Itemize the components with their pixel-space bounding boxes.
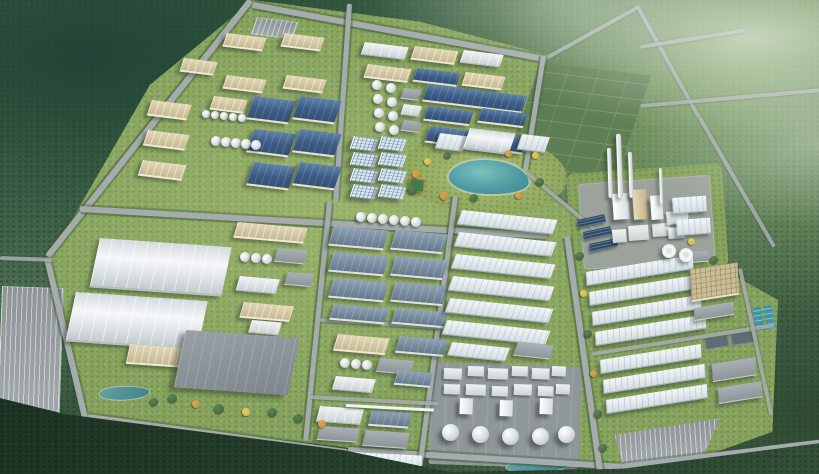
tank [220, 112, 228, 120]
warehouse-c [394, 370, 434, 388]
tank [240, 252, 250, 262]
dark-hall [174, 330, 300, 395]
tank [411, 217, 421, 227]
tree [408, 186, 417, 195]
aerial-render-industrial-park [0, 0, 819, 474]
tank [241, 139, 251, 149]
silo [502, 428, 519, 445]
tree [599, 444, 607, 452]
factory-c [284, 272, 314, 287]
silo [532, 428, 549, 445]
tree [584, 330, 592, 338]
tank [262, 254, 272, 264]
tree [150, 398, 158, 406]
tree [536, 178, 544, 186]
silo [442, 424, 459, 441]
factory-e [317, 426, 360, 443]
tank [340, 358, 350, 368]
plant-unit [514, 384, 532, 396]
tank [400, 216, 410, 226]
tree [580, 290, 587, 297]
tank [362, 360, 372, 370]
tank [202, 110, 210, 118]
tank [389, 125, 399, 135]
tank [378, 214, 388, 224]
plant-unit [488, 368, 508, 380]
logistics-warehouse [90, 238, 232, 297]
tank [238, 114, 246, 122]
plant-unit [532, 368, 550, 380]
factory-e [362, 430, 410, 449]
tree [168, 394, 177, 403]
tree [242, 408, 250, 416]
plant-hall [672, 196, 707, 214]
plant-unit [556, 384, 570, 394]
blue-hall [292, 162, 342, 190]
tank [251, 253, 261, 263]
plant-hall [676, 218, 711, 236]
lake-hall [517, 134, 550, 153]
tank [351, 359, 361, 369]
tree [590, 370, 597, 377]
tank [367, 213, 377, 223]
tree [515, 192, 522, 199]
tank [387, 97, 397, 107]
tree [688, 238, 695, 245]
tank [386, 83, 396, 93]
plant-tower [632, 189, 648, 220]
factory-b [400, 88, 422, 101]
tank [375, 122, 385, 132]
silo [472, 426, 489, 443]
blue-hall [246, 162, 296, 190]
tree [318, 420, 326, 428]
plant-unit [552, 366, 566, 376]
factory-c [248, 320, 282, 335]
tree [440, 192, 448, 200]
blue-hall [292, 129, 342, 157]
silo [558, 426, 575, 443]
tank [211, 111, 219, 119]
tree [412, 170, 420, 178]
tank [356, 212, 366, 222]
tank [251, 140, 261, 150]
plant-tower [499, 400, 513, 416]
tree [576, 252, 584, 260]
blue-hall [246, 96, 296, 124]
plant-tower [539, 398, 553, 414]
tree [444, 152, 451, 159]
plant-unit [628, 225, 649, 241]
tank [372, 80, 382, 90]
tree [268, 408, 277, 417]
tree [470, 194, 478, 202]
tree [214, 404, 224, 414]
cooling-tower [662, 244, 676, 258]
tree [532, 152, 539, 159]
plant-unit [444, 368, 462, 380]
plant-unit [512, 366, 528, 377]
blue-hall [292, 96, 342, 124]
plant-unit [612, 229, 627, 243]
plant-tower [459, 398, 473, 414]
tank [388, 111, 398, 121]
warehouse-e [368, 410, 412, 429]
tank [374, 108, 384, 118]
factory-c [274, 248, 308, 264]
tank [389, 215, 399, 225]
tree [192, 400, 200, 408]
factory-b [400, 120, 422, 133]
plant-unit [444, 384, 460, 395]
tree [294, 414, 303, 423]
factory-b [400, 104, 422, 117]
tank [211, 136, 221, 146]
tank [221, 137, 231, 147]
cooling-tower [679, 248, 693, 262]
plant-unit [538, 386, 554, 397]
tree [424, 158, 431, 165]
plant-unit [492, 386, 508, 397]
tank [373, 94, 383, 104]
plant-unit [468, 366, 484, 377]
tree [505, 150, 512, 157]
tree [594, 410, 602, 418]
plant-unit [466, 384, 486, 396]
tank [229, 113, 237, 121]
tree [710, 256, 718, 264]
tank [231, 138, 241, 148]
